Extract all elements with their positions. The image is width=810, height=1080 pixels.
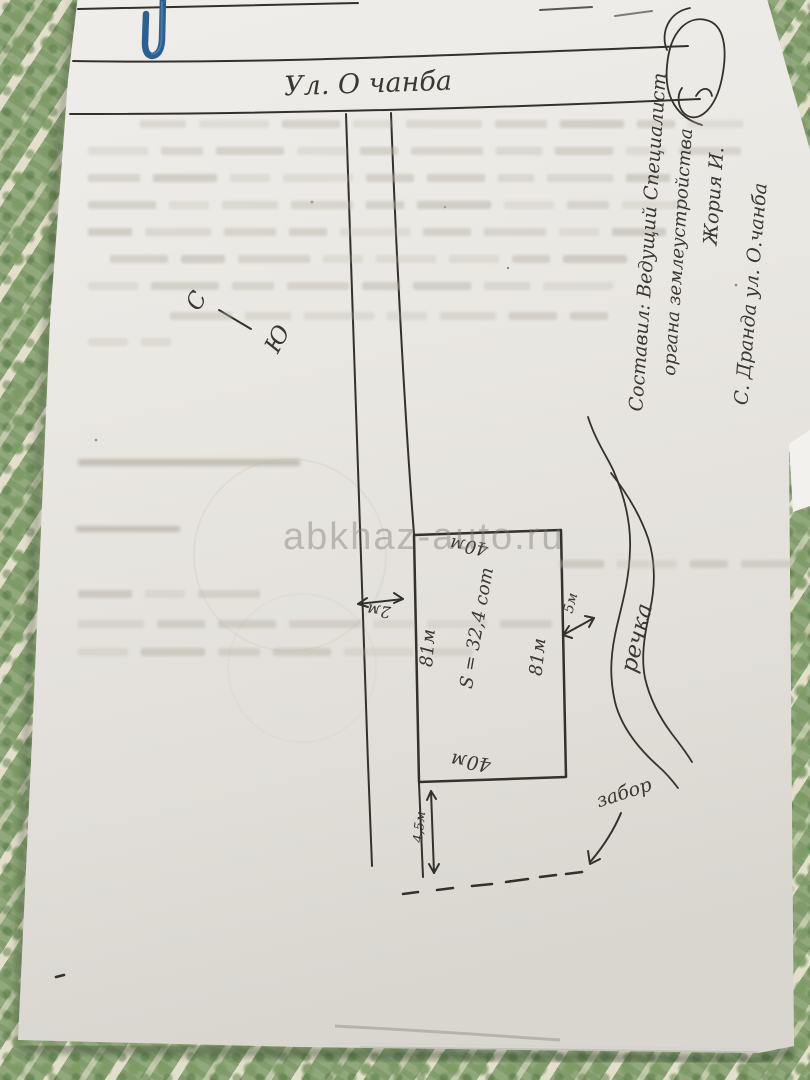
- bleed-word-blob: [495, 120, 547, 128]
- bleed-word-blob: [500, 620, 552, 628]
- bleed-word-blob: [559, 228, 599, 236]
- bleed-word-blob: [360, 147, 398, 155]
- bleed-word-blob: [218, 648, 260, 656]
- bleed-word-blob: [78, 620, 144, 628]
- bleed-word-blob: [304, 312, 374, 320]
- bleed-word-blob: [423, 228, 471, 236]
- bleed-word-blob: [376, 255, 436, 263]
- bleed-word-blob: [222, 201, 278, 209]
- bleed-word-blob: [88, 228, 132, 236]
- bleed-word-blob: [216, 147, 284, 155]
- bleed-word-blob: [440, 312, 496, 320]
- bleed-word-blob: [688, 120, 743, 128]
- bleed-word-blob: [283, 174, 353, 182]
- bleed-word-blob: [353, 120, 393, 128]
- plot-height-right-label: 81м: [526, 637, 551, 677]
- bleed-word-blob: [153, 174, 217, 182]
- bleed-word-blob: [366, 201, 404, 209]
- bleed-word-blob: [88, 174, 140, 182]
- bleed-word-blob: [560, 560, 604, 568]
- bleed-word-blob: [224, 228, 276, 236]
- road-width-label: 2м: [366, 600, 392, 622]
- bleed-word-blob: [484, 282, 530, 290]
- under-sheet-corner: [789, 430, 810, 512]
- bleed-word-blob: [297, 147, 347, 155]
- bleed-word-blob: [567, 201, 609, 209]
- bleed-word-blob: [291, 201, 353, 209]
- bleed-word-blob: [496, 147, 542, 155]
- bleed-word-blob: [287, 282, 349, 290]
- bleed-word-blob: [498, 174, 534, 182]
- bleed-word-blob: [741, 560, 793, 568]
- bleed-word-blob: [157, 620, 205, 628]
- bleed-word-blob: [289, 228, 327, 236]
- bleed-word-blob: [504, 201, 554, 209]
- street-label: Ул. О чанба: [284, 66, 453, 103]
- bleed-word-blob: [570, 312, 608, 320]
- bleed-word-blob: [366, 174, 414, 182]
- bleed-word-blob: [512, 255, 550, 263]
- bleed-word-blob: [78, 648, 128, 656]
- bleed-word-blob: [145, 228, 211, 236]
- bleed-word-blob: [273, 648, 331, 656]
- bleed-word-blob: [232, 282, 274, 290]
- bleed-word-blob: [151, 282, 219, 290]
- bleed-word-blob: [417, 201, 491, 209]
- bleed-word-blob: [230, 174, 270, 182]
- bleed-word-blob: [690, 560, 728, 568]
- bleed-word-blob: [289, 620, 361, 628]
- faint-line-2: [76, 526, 180, 532]
- bleed-word-blob: [88, 147, 148, 155]
- bleed-word-blob: [509, 312, 557, 320]
- plot-height-left-label: 81м: [416, 628, 440, 667]
- bleed-word-blob: [218, 620, 276, 628]
- bleed-word-blob: [140, 120, 186, 128]
- bleed-word-blob: [282, 120, 340, 128]
- bleed-word-blob: [238, 255, 310, 263]
- bleed-word-blob: [617, 560, 677, 568]
- bleed-word-blob: [141, 648, 205, 656]
- bleed-word-blob: [387, 312, 427, 320]
- bleed-word-blob: [555, 147, 613, 155]
- bleed-word-blob: [547, 174, 613, 182]
- bleed-word-blob: [88, 338, 128, 346]
- bleed-word-blob: [141, 338, 171, 346]
- bleed-word-blob: [427, 174, 485, 182]
- bleed-word-blob: [169, 201, 209, 209]
- bleed-word-blob: [323, 255, 363, 263]
- bleed-word-blob: [181, 255, 225, 263]
- bleed-word-blob: [411, 147, 483, 155]
- bleed-word-blob: [413, 282, 471, 290]
- bleed-word-blob: [88, 282, 138, 290]
- bleed-word-blob: [543, 282, 613, 290]
- bleed-word-blob: [449, 255, 499, 263]
- faint-line-1: [78, 459, 300, 466]
- bleed-word-blob: [198, 590, 260, 598]
- bleed-word-blob: [406, 120, 482, 128]
- bleed-word-blob: [78, 590, 132, 598]
- bleed-word-blob: [110, 255, 168, 263]
- bleed-word-blob: [245, 312, 291, 320]
- bleed-word-blob: [560, 120, 624, 128]
- bleed-word-blob: [362, 282, 400, 290]
- bleed-word-blob: [340, 228, 410, 236]
- bleed-word-blob: [161, 147, 203, 155]
- bleed-word-blob: [484, 228, 546, 236]
- bleed-word-blob: [199, 120, 269, 128]
- bleed-word-blob: [88, 201, 156, 209]
- bleed-word-blob: [563, 255, 627, 263]
- bleed-word-blob: [374, 620, 414, 628]
- bleed-word-blob: [145, 590, 185, 598]
- watermark: abkhaz-auto.ru: [283, 516, 565, 559]
- bleed-word-blob: [344, 648, 414, 656]
